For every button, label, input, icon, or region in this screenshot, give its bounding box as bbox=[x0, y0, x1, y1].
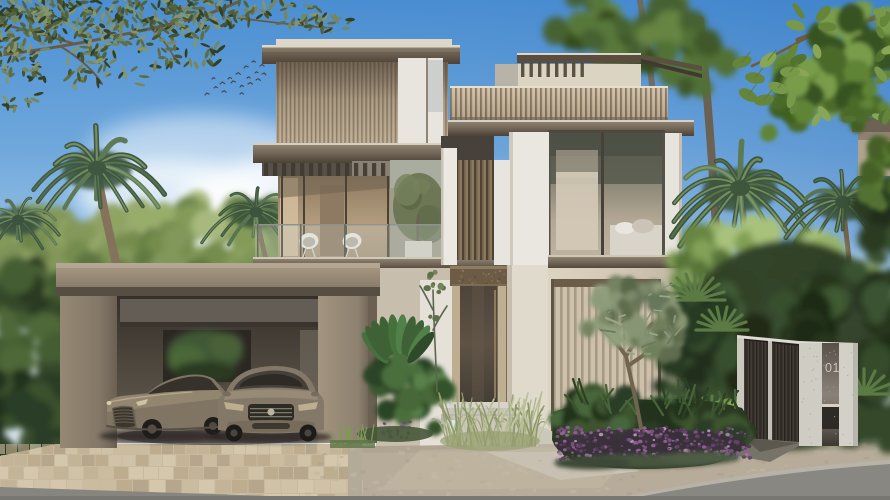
svg-text:01: 01 bbox=[825, 361, 840, 375]
